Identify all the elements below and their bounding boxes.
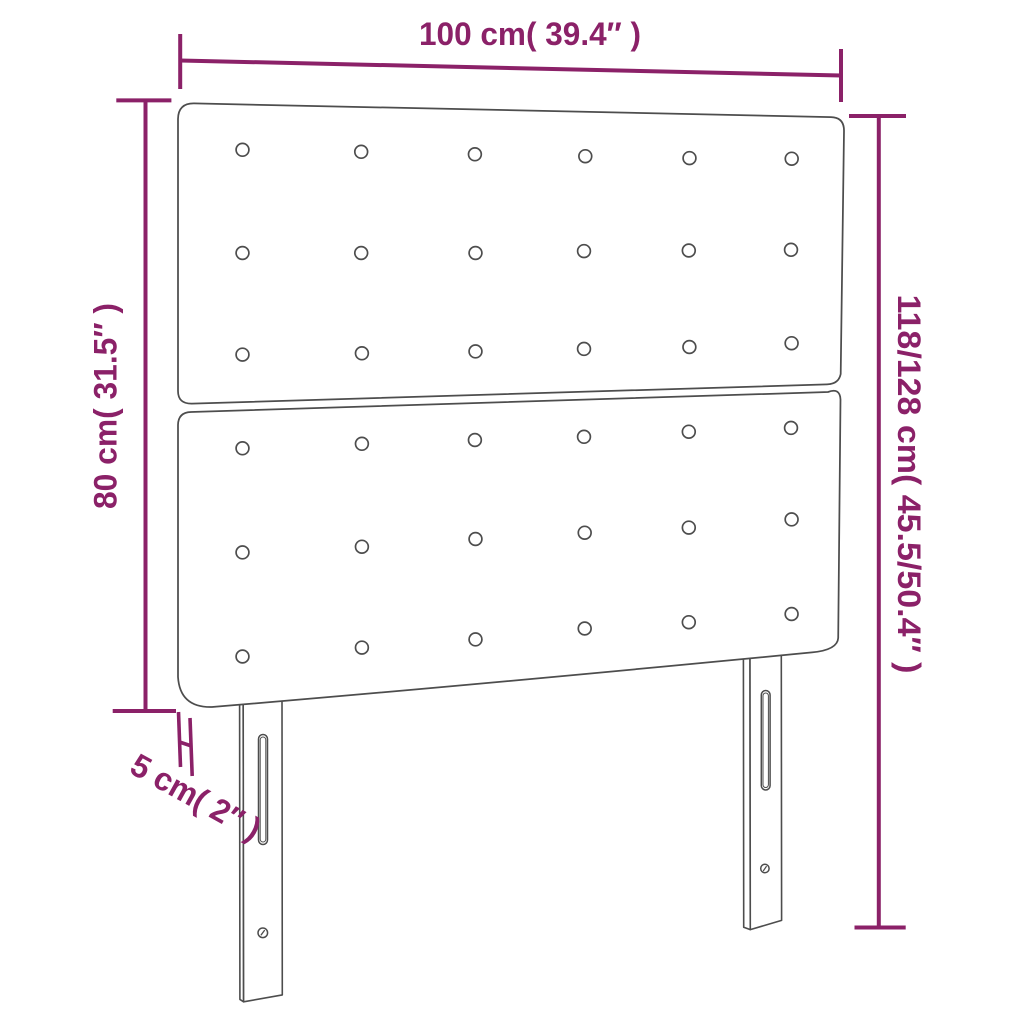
svg-text:100 cm( 39.4″ ): 100 cm( 39.4″ )	[419, 16, 641, 52]
svg-text:118/128 cm( 45.5/50.4″ ): 118/128 cm( 45.5/50.4″ )	[891, 295, 927, 674]
svg-text:80 cm( 31.5″ ): 80 cm( 31.5″ )	[88, 303, 124, 509]
